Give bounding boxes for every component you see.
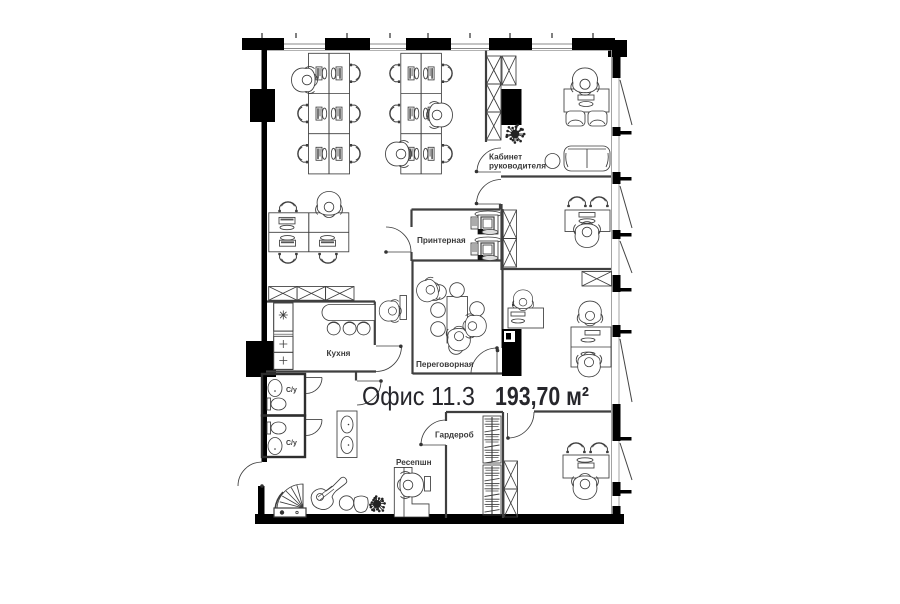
svg-text:Гардероб: Гардероб bbox=[435, 430, 474, 440]
svg-text:С/у: С/у bbox=[286, 387, 297, 394]
svg-text:Кабинет: Кабинет bbox=[489, 152, 522, 162]
svg-text:Ресепшн: Ресепшн bbox=[396, 458, 432, 467]
svg-text:193,70 м²: 193,70 м² bbox=[495, 381, 589, 411]
svg-text:Принтерная: Принтерная bbox=[417, 236, 466, 245]
svg-text:Переговорная: Переговорная bbox=[416, 360, 474, 369]
svg-text:С/у: С/у bbox=[286, 440, 297, 447]
svg-text:Офис 11.3: Офис 11.3 bbox=[362, 381, 475, 411]
svg-text:руководителя: руководителя bbox=[489, 162, 546, 171]
svg-text:Кухня: Кухня bbox=[327, 349, 351, 358]
